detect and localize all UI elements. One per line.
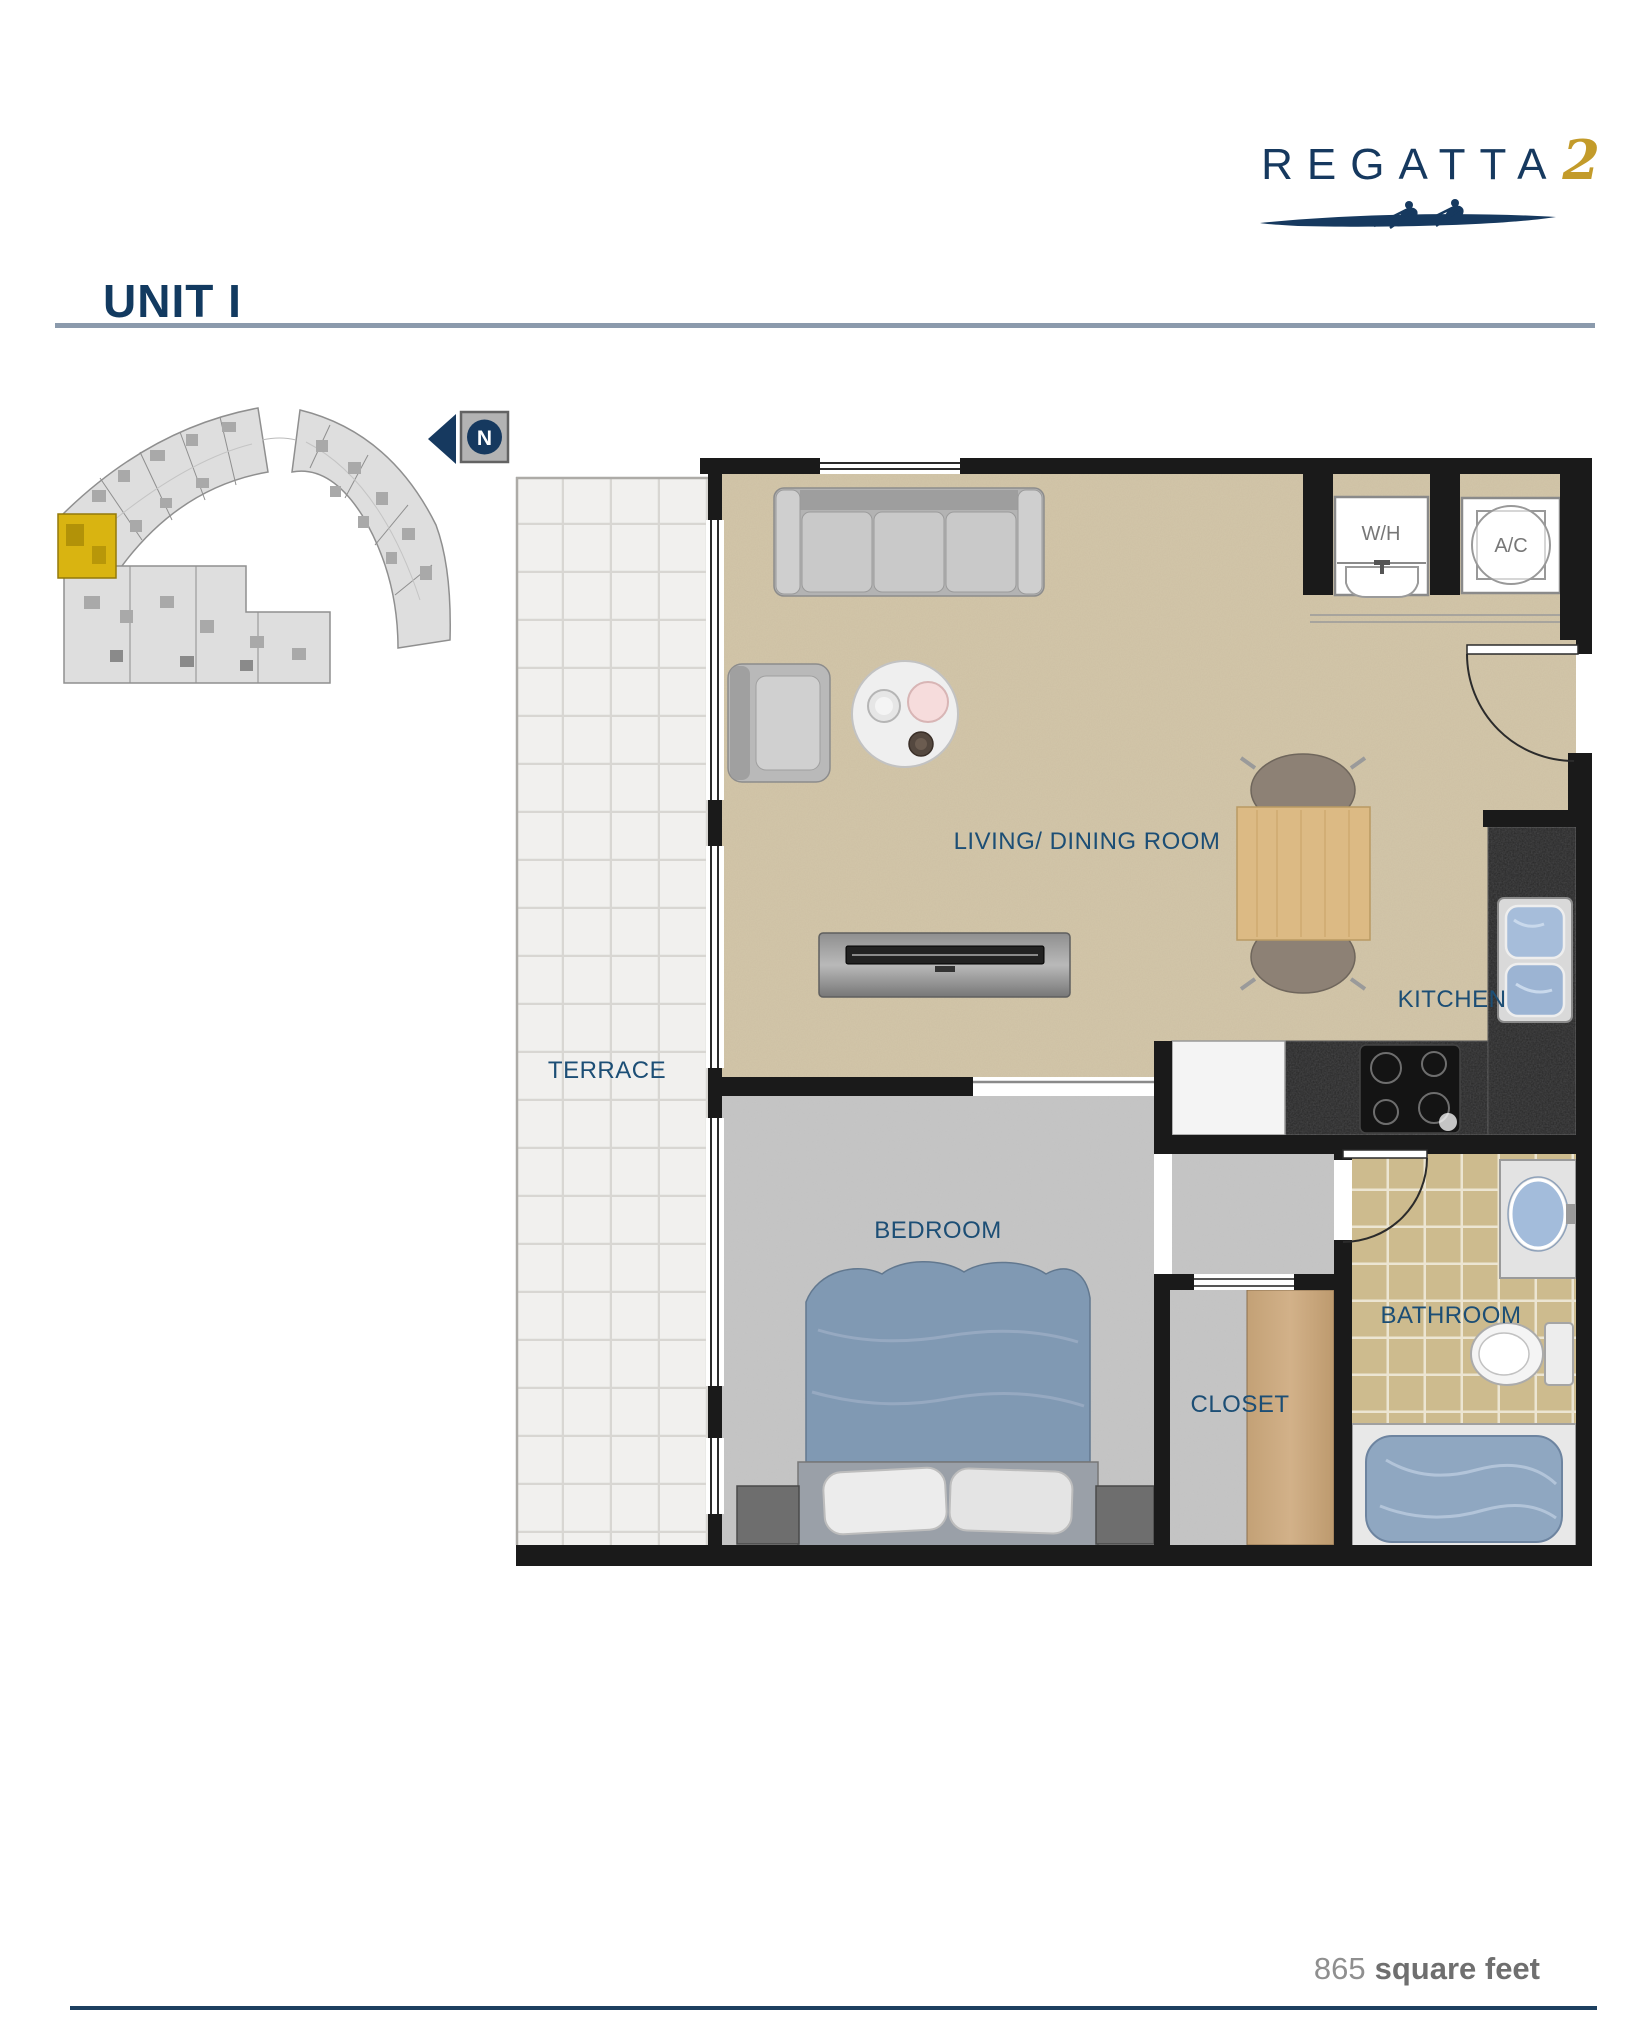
sofa <box>774 488 1044 596</box>
title-underline <box>55 323 1595 328</box>
area-value: 865 <box>1314 1951 1366 1986</box>
brand-name: REGATTA <box>1261 140 1560 189</box>
page-title: UNIT I <box>103 274 242 328</box>
north-indicator: N <box>428 412 508 464</box>
rowing-boat-icon <box>1258 196 1558 234</box>
vanity-sink <box>1500 1160 1576 1278</box>
key-plan-highlighted-unit <box>58 514 116 578</box>
key-plan <box>58 408 450 683</box>
water-heater-label: W/H <box>1362 523 1401 545</box>
brand-number: 2 <box>1562 128 1600 192</box>
closet-label: CLOSET <box>1190 1391 1289 1418</box>
living-dining-label: LIVING/ DINING ROOM <box>954 828 1221 855</box>
unit-floor-plan: W/H A/C <box>516 458 1592 1566</box>
area-unit: square feet <box>1375 1951 1540 1986</box>
side-table <box>852 661 958 767</box>
tv-console <box>819 933 1070 997</box>
closet-door <box>1194 1274 1294 1290</box>
toilet <box>1471 1323 1573 1385</box>
bathtub <box>1352 1424 1576 1554</box>
nightstand-right <box>1096 1486 1154 1544</box>
bed <box>798 1262 1098 1546</box>
kitchen-label: KITCHEN <box>1398 986 1507 1013</box>
cooktop <box>1360 1045 1460 1133</box>
north-arrow-icon <box>428 414 456 464</box>
footer-area: 865square feet <box>1314 1951 1540 1987</box>
kitchen-pass-counter <box>1172 1041 1285 1135</box>
nightstand-left <box>737 1486 799 1544</box>
ac-label: A/C <box>1494 535 1527 557</box>
north-label: N <box>477 427 492 450</box>
terrace-label: TERRACE <box>548 1057 666 1084</box>
water-heater-closet: W/H <box>1335 497 1428 597</box>
armchair <box>728 664 830 782</box>
ac-closet: A/C <box>1462 498 1560 593</box>
brand-logo: REGATTA2 <box>1170 128 1600 234</box>
terrace-area <box>516 477 708 1545</box>
floor-plan-canvas: N <box>0 0 1650 2017</box>
kitchen-sink <box>1498 898 1572 1022</box>
dining-table <box>1237 754 1370 993</box>
bedroom-label: BEDROOM <box>874 1217 1002 1244</box>
footer-rule <box>70 2006 1597 2010</box>
bathroom-label: BATHROOM <box>1381 1302 1522 1329</box>
